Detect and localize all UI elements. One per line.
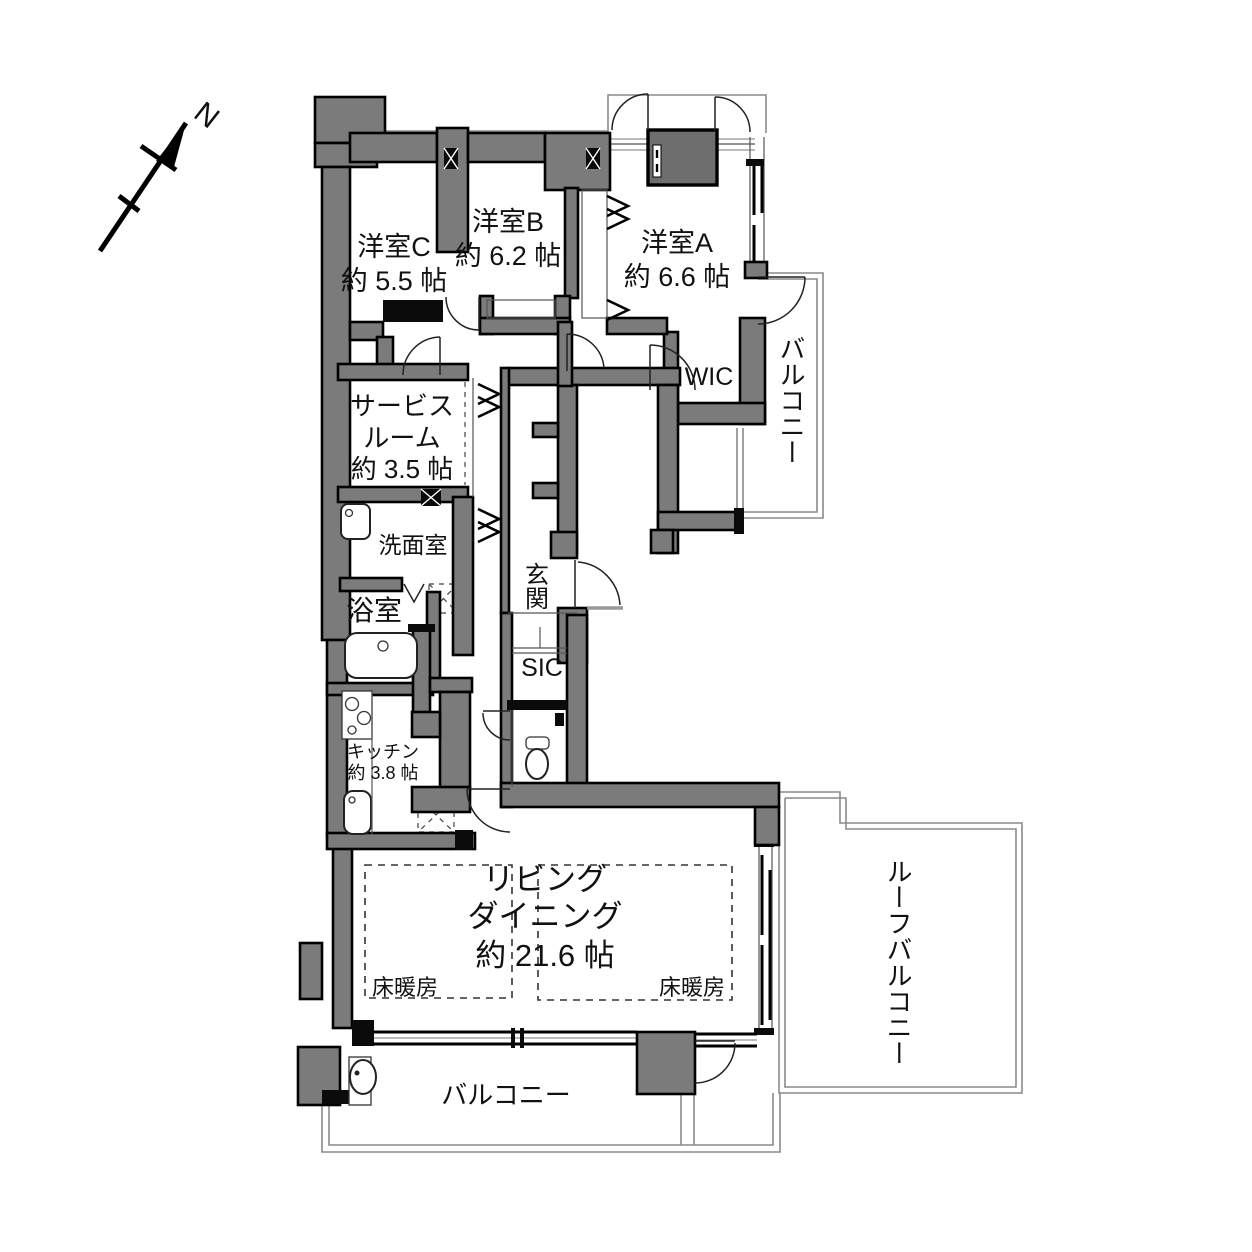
closet-a	[582, 190, 607, 318]
label-yoshitsu-c: 洋室C	[357, 232, 431, 262]
label-yokushitsu: 浴室	[346, 595, 402, 626]
label-sic: SIC	[521, 654, 563, 682]
label-living-2: ダイニング	[468, 899, 623, 934]
toilet	[526, 737, 549, 779]
label-yoshitsu-b: 洋室B	[472, 207, 544, 237]
label-service-room-size: 約 3.5 帖	[351, 454, 454, 484]
door-entrance	[575, 560, 620, 608]
label-yoshitsu-a-size: 約 6.6 帖	[624, 262, 731, 292]
label-genkan: 玄関	[521, 562, 548, 610]
washbasin	[341, 504, 370, 539]
north-label: N	[188, 96, 225, 135]
pillar	[637, 1032, 695, 1094]
label-wic: WIC	[685, 363, 734, 391]
floor-plan-svg: N 洋室C 約 5.5 帖 洋室B 約 6.2 帖 洋室A 約 6.6 帖 WI…	[0, 0, 1252, 1252]
label-service-room-1: サービス	[350, 391, 454, 421]
kitchen-sink	[344, 791, 371, 834]
label-yoshitsu-a: 洋室A	[641, 228, 713, 258]
stove	[342, 691, 372, 739]
bathtub	[345, 633, 417, 678]
meter-box-doors	[612, 94, 750, 132]
label-balcony-right: バルコニー	[776, 335, 806, 465]
closet-b	[487, 300, 555, 318]
vent-window-2	[586, 148, 600, 169]
label-senmenshitsu: 洗面室	[379, 532, 448, 558]
label-living-size: 約 21.6 帖	[475, 938, 615, 973]
north-arrow: N	[100, 96, 225, 251]
label-yoshitsu-b-size: 約 6.2 帖	[455, 241, 562, 271]
label-floor-heating-right: 床暖房	[659, 975, 725, 1000]
label-kitchen: キッチン	[347, 742, 419, 762]
door-room-b	[446, 297, 479, 330]
label-balcony-bottom: バルコニー	[441, 1080, 570, 1110]
label-living-1: リビング	[483, 862, 607, 897]
floor-plan-page: N 洋室C 約 5.5 帖 洋室B 約 6.2 帖 洋室A 約 6.6 帖 WI…	[0, 0, 1252, 1252]
label-roof-balcony: ルーフバルコニー	[883, 858, 913, 1066]
vent-window-3	[421, 489, 441, 506]
label-yoshitsu-c-size: 約 5.5 帖	[341, 266, 448, 296]
label-kitchen-size: 約 3.8 帖	[347, 763, 418, 783]
balcony-faucet	[349, 1057, 376, 1105]
label-service-room-2: ルーム	[363, 423, 440, 453]
bath-folding-door	[404, 584, 424, 602]
label-floor-heating-left: 床暖房	[372, 975, 438, 1000]
vent-window-1	[444, 148, 458, 169]
